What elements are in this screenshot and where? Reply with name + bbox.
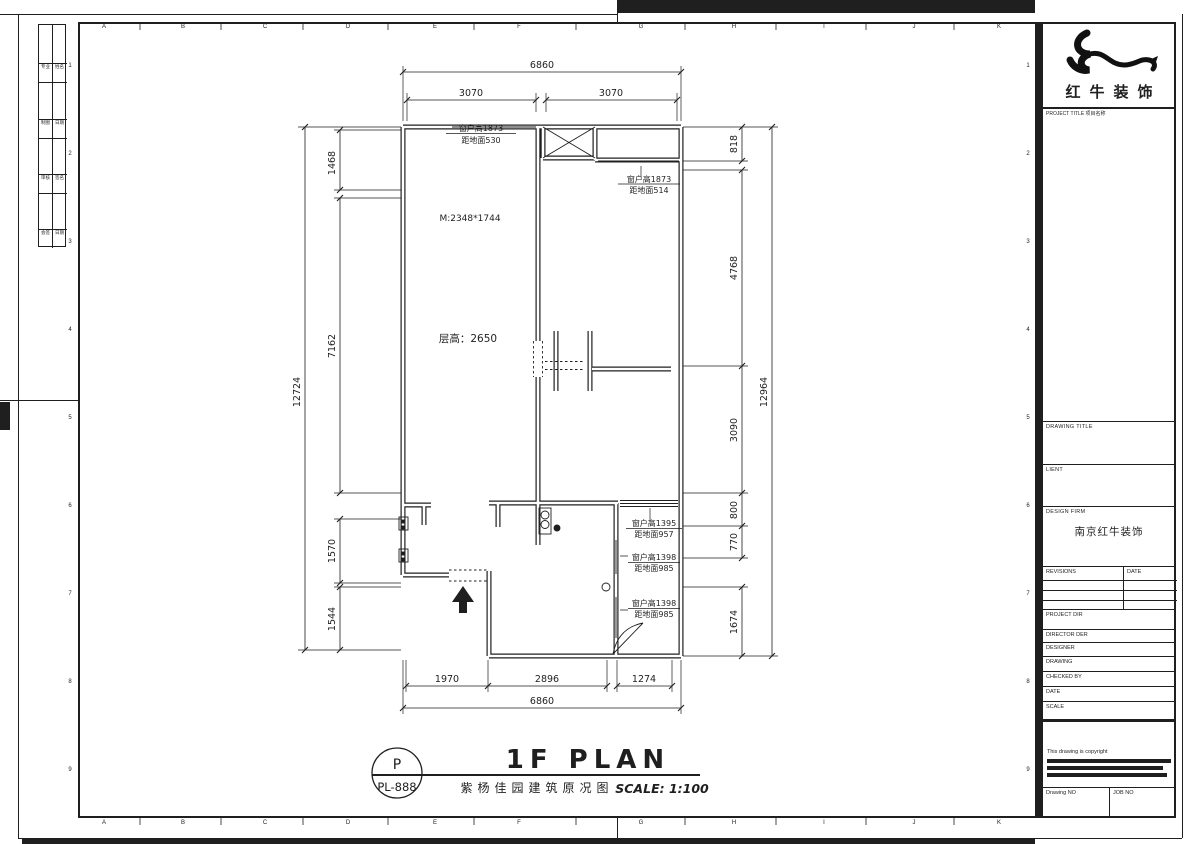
door-size-note: M:2348*1744: [439, 214, 500, 224]
dim-text: 1274: [632, 674, 656, 685]
field-label: CHECKED BY: [1043, 672, 1175, 680]
field-rows: PROJECT DIR DIRECTOR DER DESIGNER DRAWIN…: [1043, 609, 1175, 719]
dim-text: 2896: [535, 674, 559, 685]
dim-text: 1544: [327, 607, 338, 631]
dim-text: 6860: [530, 60, 554, 71]
dim-text: 1970: [435, 674, 459, 685]
window-note: 窗户高1398: [632, 598, 676, 608]
dim-text: 12964: [759, 377, 770, 407]
shaft-cross-icon: [543, 127, 595, 158]
panel-mark: [401, 520, 405, 523]
dim-text: 12724: [292, 377, 303, 407]
floor-plan-svg: 6860 3070 3070 1970 2896 1274 6860 12724…: [0, 0, 1200, 844]
dim-text: 1570: [327, 539, 338, 563]
field-label: DESIGNER: [1043, 643, 1175, 651]
stove-burner-icon: [541, 511, 549, 519]
field-label: DATE: [1043, 687, 1175, 695]
window-note: 距地面985: [634, 563, 673, 573]
dim-text: 818: [729, 135, 740, 153]
company-logo: [1057, 27, 1161, 79]
dim-text: 1468: [327, 151, 338, 175]
dim-text: 1674: [729, 610, 740, 634]
logo-swoosh: [1070, 33, 1090, 70]
revisions-date-label: DATE: [1127, 569, 1141, 575]
revisions-table: REVISIONS DATE: [1043, 566, 1175, 609]
stamp-code: PL-888: [377, 780, 416, 794]
design-firm-value: 南京红牛装饰: [1043, 524, 1175, 539]
job-no-label: JOB NO: [1113, 790, 1133, 796]
copyright-note: This drawing is copyright: [1047, 749, 1108, 755]
dim-text: 800: [729, 501, 740, 519]
copyright-redacted-line: [1047, 773, 1167, 777]
dim-text: 3090: [729, 418, 740, 442]
window-note: 距地面530: [461, 135, 500, 145]
floor-drain-icon: [602, 583, 610, 591]
field-label: DIRECTOR DER: [1043, 630, 1175, 638]
company-name: 红牛装饰: [1043, 81, 1175, 102]
window-note: 窗户高1873: [459, 123, 503, 133]
window-note: 距地面514: [629, 185, 668, 195]
dim-text: 6860: [530, 696, 554, 707]
stove-burner-icon: [541, 521, 549, 529]
stove-counter: [539, 508, 551, 534]
titleblock-spine: [1035, 22, 1042, 818]
dim-text: 4768: [729, 256, 740, 280]
drawing-sheet: 专业 姓名 制图 日期 审核 签名 会签 日期 A B C D E F G H …: [0, 0, 1200, 844]
entry-arrow-icon: [452, 586, 474, 613]
stamp-letter: P: [393, 757, 401, 773]
panel-mark: [401, 552, 405, 555]
panel-mark: [401, 526, 405, 529]
window-note: 窗户高1395: [632, 518, 676, 528]
design-firm-field: DESIGN FIRM 南京红牛装饰: [1043, 506, 1175, 566]
drawing-no-label: Drawing NO: [1046, 790, 1076, 796]
drawing-title-field: DRAWING TITLE: [1043, 421, 1175, 464]
drawing-title: 1F PLAN: [506, 745, 670, 775]
copyright-redacted-line: [1047, 759, 1171, 763]
ceiling-height-note: 层高：2650: [439, 332, 497, 345]
field-label: SCALE: [1043, 702, 1175, 710]
number-row: Drawing NO JOB NO: [1043, 787, 1175, 816]
client-field: LIENT: [1043, 464, 1175, 506]
wall-outline: [403, 127, 681, 656]
field-label: PROJECT DIR: [1043, 610, 1175, 618]
project-title-label: PROJECT TITLE 项目名称: [1046, 110, 1106, 117]
dim-text: 7162: [327, 334, 338, 358]
window-note: 窗户高1873: [627, 174, 671, 184]
logo-swoosh: [1090, 53, 1154, 69]
fixtures: [399, 508, 643, 654]
window-note: 距地面985: [634, 609, 673, 619]
walls: [403, 127, 681, 656]
dim-text: 3070: [599, 88, 623, 99]
drawing-title-cn: 紫杨佳园建筑原况图: [460, 780, 613, 795]
door-opening-dashes: [449, 341, 585, 581]
field-label: DRAWING: [1043, 657, 1175, 665]
dim-text: 3070: [459, 88, 483, 99]
revisions-label: REVISIONS: [1046, 569, 1076, 575]
title-block: 红牛装饰 PROJECT TITLE 项目名称 DRAWING TITLE LI…: [1042, 22, 1176, 818]
floor-drain-icon: [554, 525, 560, 531]
window-note: 距地面957: [634, 529, 673, 539]
panel-mark: [401, 558, 405, 561]
copyright-redacted-line: [1047, 766, 1163, 770]
scale-note: SCALE: 1:100: [615, 781, 709, 796]
dim-text: 770: [729, 533, 740, 551]
window-note: 窗户高1398: [632, 552, 676, 562]
